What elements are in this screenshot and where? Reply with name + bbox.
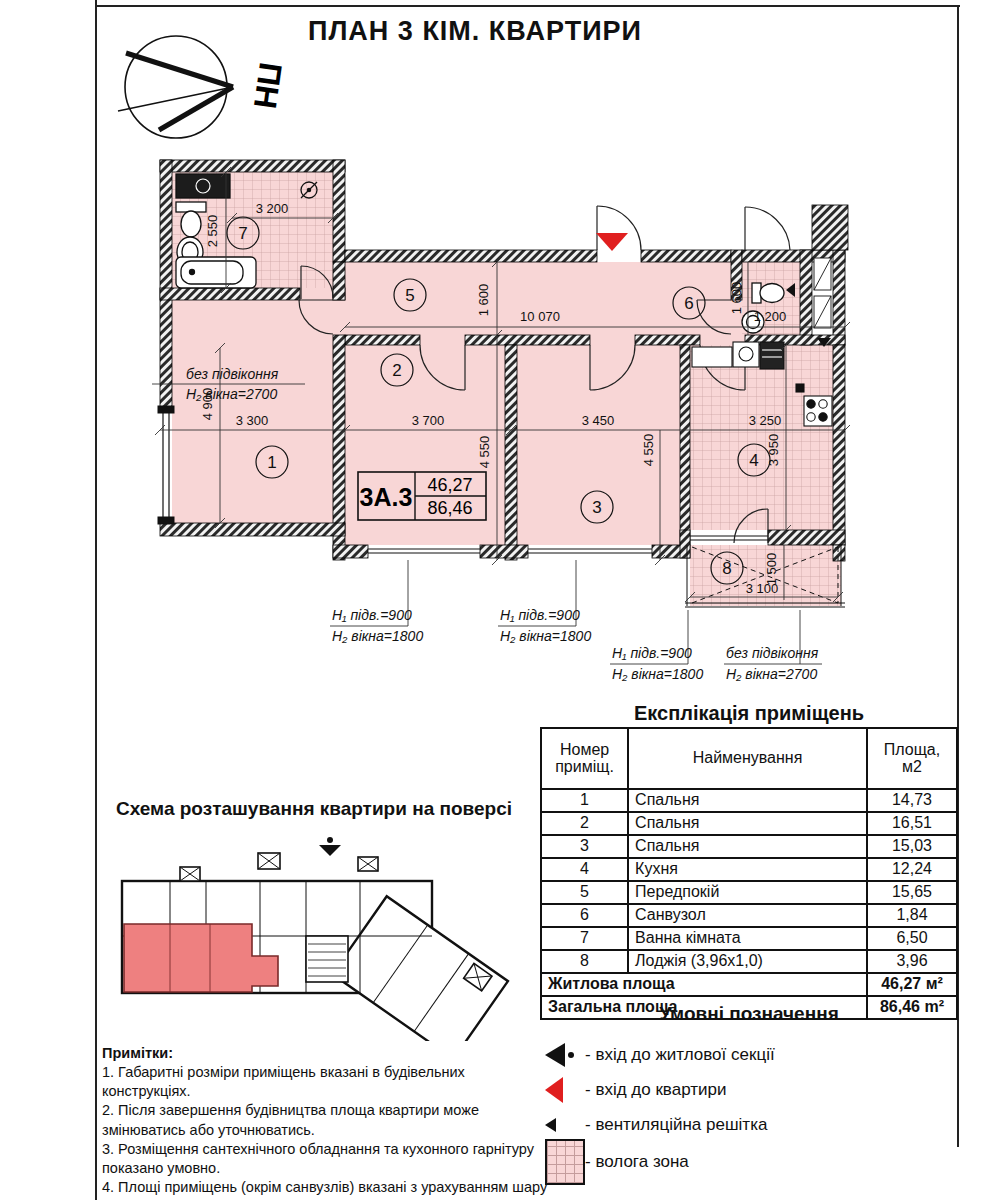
wet-zone-icon <box>545 1139 585 1185</box>
legend-item-label: - вентиляційна решітка <box>585 1115 767 1135</box>
column-header: Найменування <box>628 728 867 789</box>
note-line: 3. Розміщення сантехнічного обладнання т… <box>102 1140 550 1178</box>
floor-plan: 3 200 2 550 10 070 1 600 1 600 1 200 3 3… <box>95 150 963 710</box>
dim-label: 3 950 <box>766 434 781 467</box>
notes-block: Примітки: 1. Габаритні розміри приміщень… <box>102 1044 550 1200</box>
summary-row-living: Житлова площа 46,27 м² <box>541 973 957 996</box>
window-note: H₂ вікна=2700 <box>726 666 817 682</box>
svg-text:2: 2 <box>392 361 401 380</box>
legend-item-apartment-entrance: - вхід до квартири <box>545 1073 726 1107</box>
svg-text:6: 6 <box>684 294 693 313</box>
note-line: 2. Після завершення будівництва площа кв… <box>102 1101 550 1139</box>
unit-label-box: 3А.3 46,27 86,46 <box>358 472 486 520</box>
column-header: Площа, м2 <box>867 728 957 789</box>
explication-table: Номер приміщ. Найменування Площа, м2 1Сп… <box>540 727 958 1020</box>
legend-item-label: - вхід до житлової секції <box>585 1045 775 1065</box>
compass-north-label: ПН <box>247 60 289 111</box>
apartment-entrance-arrow <box>596 233 628 251</box>
svg-text:4: 4 <box>749 451 758 470</box>
vent-grille-icon <box>545 1118 585 1132</box>
table-row: 6Санвузол1,84 <box>541 904 957 927</box>
note-line: 4. Площі приміщень (окрім санвузлів) вка… <box>102 1178 550 1200</box>
dim-label: 3 700 <box>412 413 445 428</box>
table-row: 1Спальня14,73 <box>541 789 957 812</box>
svg-text:7: 7 <box>238 224 247 243</box>
page-title: ПЛАН 3 КІМ. КВАРТИРИ <box>240 16 710 47</box>
window-note: H₂ вікна=2700 <box>186 386 277 402</box>
dim-label: 3 450 <box>582 413 615 428</box>
legend-item-section-entrance: - вхід до житлової секції <box>545 1038 775 1072</box>
window-note: без підвіконня <box>186 366 279 382</box>
dim-label: 4 550 <box>477 436 492 469</box>
table-row: 7Ванна кімната6,50 <box>541 927 957 950</box>
explication-title: Експлікація приміщень <box>540 702 958 725</box>
dim-label: 3 250 <box>749 413 782 428</box>
section-entrance-arrow <box>319 837 341 856</box>
window-note: H₁ підв.=900 <box>612 645 692 661</box>
dim-label: 10 070 <box>520 309 560 324</box>
legend-item-label: - вхід до квартири <box>585 1080 726 1100</box>
dim-label: 1 600 <box>729 282 744 315</box>
section-entrance-icon <box>545 1043 585 1067</box>
table-header-row: Номер приміщ. Найменування Площа, м2 <box>541 728 957 789</box>
legend-item-vent-grille: - вентиляційна решітка <box>545 1108 767 1142</box>
floor-scheme-title: Схема розташування квартири на поверсі <box>104 798 524 820</box>
unit-living-area: 46,27 <box>427 475 472 495</box>
table-row: 4Кухня12,24 <box>541 858 957 881</box>
dim-label: 2 550 <box>205 215 220 248</box>
dim-label: 4 550 <box>641 434 656 467</box>
compass-needle <box>126 53 233 87</box>
window-note: без підвіконня <box>726 645 819 661</box>
drawing-sheet: ПЛАН 3 КІМ. КВАРТИРИ ПН <box>0 0 982 1200</box>
column-header: Номер приміщ. <box>541 728 628 789</box>
dim-label: 1 600 <box>476 284 491 317</box>
washing-machine-icon <box>176 174 230 198</box>
window-note: H₂ вікна=1800 <box>500 628 591 644</box>
apartment-entrance-icon <box>545 1077 585 1103</box>
legend-item-wet-zone: - волога зона <box>545 1138 689 1186</box>
unit-code: 3А.3 <box>360 483 413 511</box>
table-row: 2Спальня16,51 <box>541 812 957 835</box>
svg-text:5: 5 <box>405 286 414 305</box>
dim-label: 3 200 <box>256 201 289 216</box>
floor-scheme <box>110 836 510 1041</box>
fridge-icon <box>760 342 784 369</box>
table-row: 3Спальня15,03 <box>541 835 957 858</box>
note-line: 1. Габаритні розміри приміщень вказані в… <box>102 1063 550 1101</box>
notes-title: Примітки: <box>102 1044 550 1063</box>
svg-text:3: 3 <box>592 498 601 517</box>
table-row: 8Лоджія (3,96x1,0)3,96 <box>541 950 957 973</box>
dim-label: 3 300 <box>236 413 269 428</box>
svg-text:8: 8 <box>722 559 731 578</box>
legend-item-label: - волога зона <box>585 1152 689 1172</box>
dim-label: 3 100 <box>746 581 779 596</box>
window-note: H₂ вікна=1800 <box>612 666 703 682</box>
window-note: H₂ вікна=1800 <box>332 628 423 644</box>
dim-label: 1 200 <box>754 309 787 324</box>
sheet-frame-top <box>95 5 960 7</box>
svg-text:1: 1 <box>267 453 276 472</box>
north-compass: ПН <box>105 25 295 155</box>
table-row: 5Передпокій15,65 <box>541 881 957 904</box>
window-note: H₁ підв.=900 <box>332 607 412 623</box>
legend-title: Умовні позначення <box>540 1003 958 1025</box>
window-note: H₁ підв.=900 <box>500 607 580 623</box>
unit-total-area: 86,46 <box>427 498 472 518</box>
